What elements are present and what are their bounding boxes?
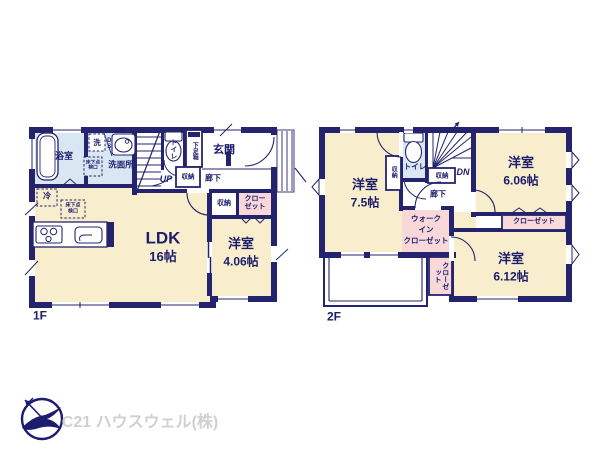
room-label-washer: 洗: [93, 139, 101, 147]
floor-label-1f: 1F: [33, 309, 47, 322]
label-wic-line1: ウォーク: [411, 215, 441, 223]
room-label-bath: 浴室: [55, 152, 73, 162]
balcony: [324, 257, 427, 306]
room-label-entrance: 玄関: [213, 144, 235, 156]
room-size-bedroom2-2f: 6.06帖: [503, 174, 538, 187]
label-storage-closet-2f: 収納: [390, 166, 397, 178]
floorplan-drawing: [0, 0, 600, 450]
logo-bird: [22, 407, 61, 430]
entrance-porch-steps: [277, 130, 306, 192]
room-label-bedroom2-2f: 洋室: [508, 156, 534, 170]
label-stairs-dn: DN: [457, 168, 470, 178]
room-label-bedroom1-2f: 洋室: [352, 178, 378, 192]
label-underfloor-hatch-ldk: 床下点検口: [64, 204, 83, 215]
room-label-washroom: 洗面所: [108, 160, 134, 169]
room-label-ds: DS: [106, 138, 113, 150]
room-size-bedroom3-2f: 6.12帖: [493, 270, 528, 283]
room-label-toilet-1f: トイレ: [169, 139, 177, 160]
floorplan-page: 浴室 洗 DS PS 洗面所 床下点検口 床下点検口 冷 トイレ 下足箱 玄関 …: [0, 0, 600, 450]
room-label-hallway-2f: 廊下: [430, 191, 446, 200]
room-size-ldk: 16帖: [149, 250, 176, 264]
room-size-bedroom-1f: 4.06帖: [223, 255, 258, 268]
toilet-2f: [404, 133, 423, 163]
label-storage-south: 収納: [217, 200, 231, 208]
room-label-hallway-1f: 廊下: [205, 175, 221, 184]
room-label-fridge: 冷: [43, 193, 51, 202]
label-closet-1f: クローゼット: [242, 195, 268, 210]
label-closet-side: クローゼット: [433, 259, 448, 293]
label-closet-north: クローゼット: [513, 218, 555, 226]
label-storage-hall-2f: 収納: [436, 172, 449, 179]
room-label-shoebox: 下足箱: [191, 142, 198, 160]
company-name: C21 ハウスウェル(株): [62, 414, 218, 432]
label-wic-line3: クローゼット: [404, 237, 449, 245]
company-logo: [22, 398, 62, 439]
label-underfloor-hatch-wash: 床下点検口: [85, 161, 101, 172]
room-label-bedroom-1f: 洋室: [228, 237, 254, 251]
room-label-bedroom3-2f: 洋室: [498, 252, 524, 266]
label-wic-line2: イン: [419, 226, 434, 234]
floor-label-2f: 2F: [327, 310, 341, 323]
room-size-bedroom1-2f: 7.5帖: [351, 196, 380, 209]
label-stairs-up: UP: [160, 175, 173, 185]
label-storage-hall-1f: 収納: [182, 173, 195, 180]
room-label-ps: PS: [116, 127, 126, 135]
kitchen-counter: [33, 222, 114, 247]
room-label-ldk: LDK: [146, 230, 181, 249]
room-label-toilet-2f: トイレ: [404, 163, 427, 171]
